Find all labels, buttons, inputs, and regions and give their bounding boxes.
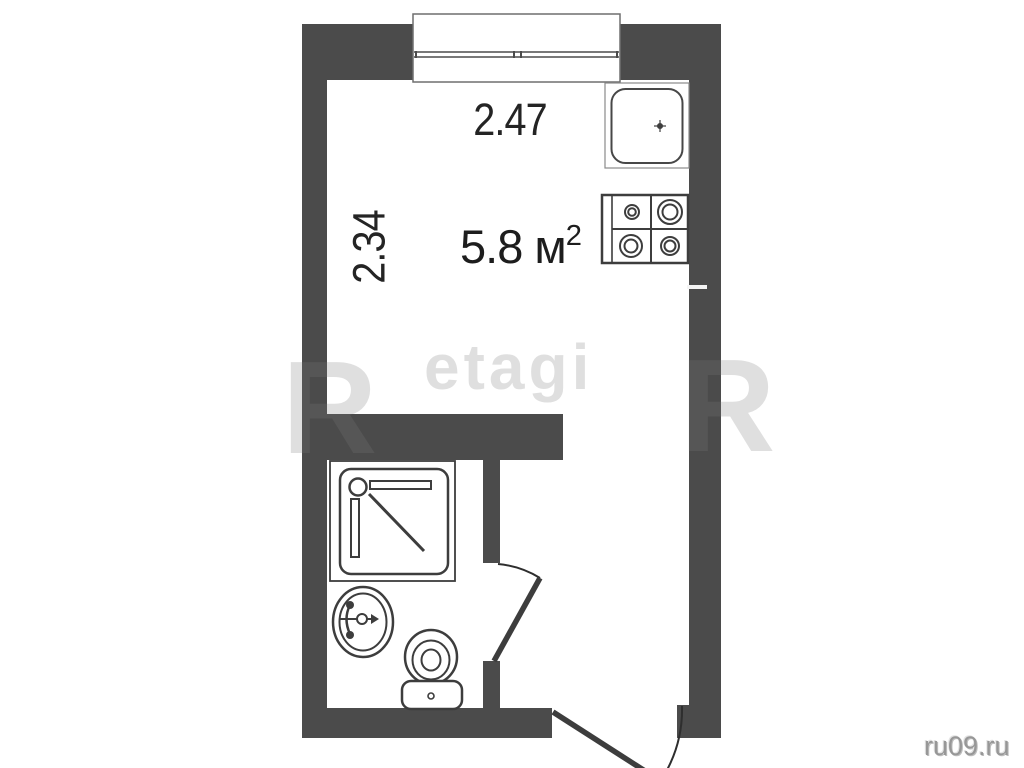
site-credit: ru09.ru bbox=[924, 731, 1010, 762]
bathroom-door-icon bbox=[494, 564, 540, 661]
kitchen-sink-icon bbox=[605, 83, 689, 168]
entrance-door-icon bbox=[553, 706, 682, 768]
window-icon bbox=[413, 14, 620, 82]
wall-break-mark bbox=[687, 285, 707, 289]
floor-plan: R etagi R bbox=[0, 0, 1024, 768]
fixtures-layer bbox=[0, 0, 1024, 768]
washbasin-icon bbox=[333, 587, 393, 657]
shower-tray-icon bbox=[330, 461, 455, 581]
stove-icon bbox=[602, 195, 688, 263]
toilet-icon bbox=[402, 630, 462, 709]
